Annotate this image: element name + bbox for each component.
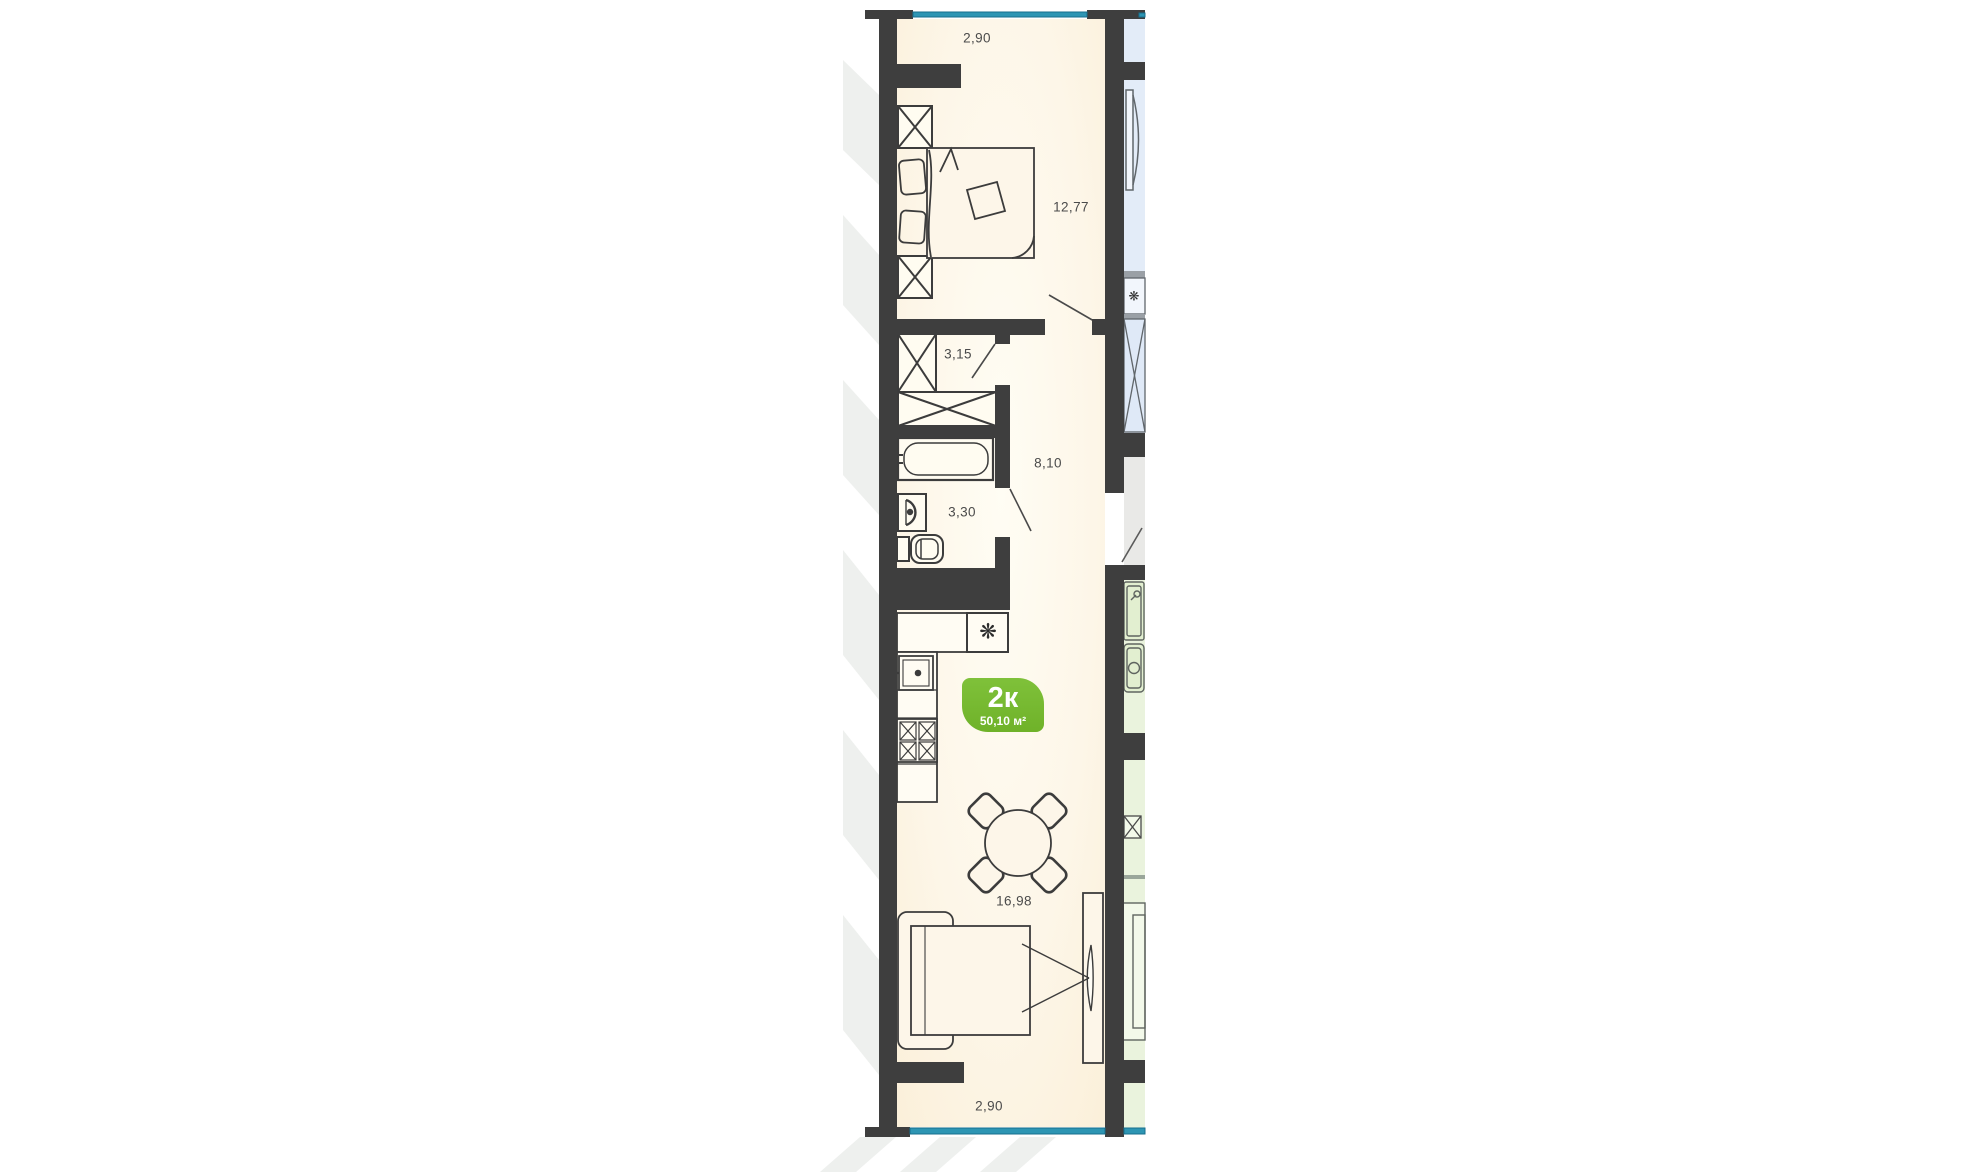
wall-neighbor-top (1124, 62, 1145, 80)
wall-protrusion (1105, 733, 1145, 760)
neighbor-stove (1124, 816, 1141, 838)
toilet (897, 535, 943, 563)
sofa (898, 912, 1030, 1049)
window-neighbor-bottom (1124, 1128, 1145, 1134)
wall-right-upper (1105, 19, 1124, 493)
wall-cap-bottom-left (865, 1127, 910, 1137)
wardrobe-top (898, 106, 932, 148)
neighbor-shower (1124, 582, 1144, 640)
dim-bottom-width: 2,90 (975, 1099, 1003, 1114)
neighbor-washer (1124, 644, 1144, 692)
wall-protrusion (1105, 1060, 1145, 1083)
wall-cap-top-right (1087, 10, 1145, 19)
window-bottom (910, 1128, 1105, 1134)
dim-closet-area: 3,15 (944, 347, 972, 362)
dim-bathroom-area: 3,30 (948, 505, 976, 520)
window-top (913, 12, 1087, 17)
wall-stub-bedroom (897, 64, 961, 88)
dim-hallway-area: 8,10 (1034, 456, 1062, 471)
wide-wardrobe (898, 392, 996, 426)
stove (897, 719, 937, 762)
bathtub (890, 438, 993, 480)
wall-cap-top-left (865, 10, 913, 19)
wall-shaft (879, 568, 1010, 610)
wardrobe-bottom (898, 256, 932, 298)
wall-bathroom-right-upper (995, 385, 1010, 488)
floorplan-page: 2,90 12,77 3,15 8,10 3,30 16,98 2,90 ❋ ❋… (0, 0, 1980, 1172)
wall-right-lower (1105, 565, 1124, 1137)
neighbor-window-shaft (1124, 319, 1145, 432)
unit-area-label: 50,10 м² (980, 715, 1026, 727)
wall-protrusion (1105, 565, 1145, 580)
neighbor-unit-bottom-green (1122, 580, 1145, 1128)
neighbor-unit-top-blue (1124, 19, 1145, 433)
floor-plan-drawing (0, 0, 1980, 1172)
unit-badge[interactable]: 2к 50,10 м² (962, 678, 1044, 732)
common-corridor (1122, 457, 1145, 565)
dim-top-width: 2,90 (963, 31, 991, 46)
wall-protrusion (1105, 433, 1145, 457)
wall-stub-bottom (897, 1062, 964, 1083)
unit-type-label: 2к (988, 684, 1019, 713)
wall-bathroom-top (897, 425, 995, 438)
fridge-icon: ❋ (979, 622, 997, 643)
dining-table (985, 810, 1051, 876)
window-neighbor-top (1139, 13, 1145, 17)
wall-bedroom-bottom (897, 319, 1045, 335)
neighbor-fridge-icon: ❋ (1129, 290, 1140, 303)
closet-wardrobe (898, 334, 936, 392)
neighbor-bed (1122, 903, 1145, 1040)
dim-bedroom-area: 12,77 (1053, 200, 1089, 215)
dim-kitchen-living-area: 16,98 (996, 894, 1032, 909)
kitchen-counter-top (897, 613, 967, 652)
